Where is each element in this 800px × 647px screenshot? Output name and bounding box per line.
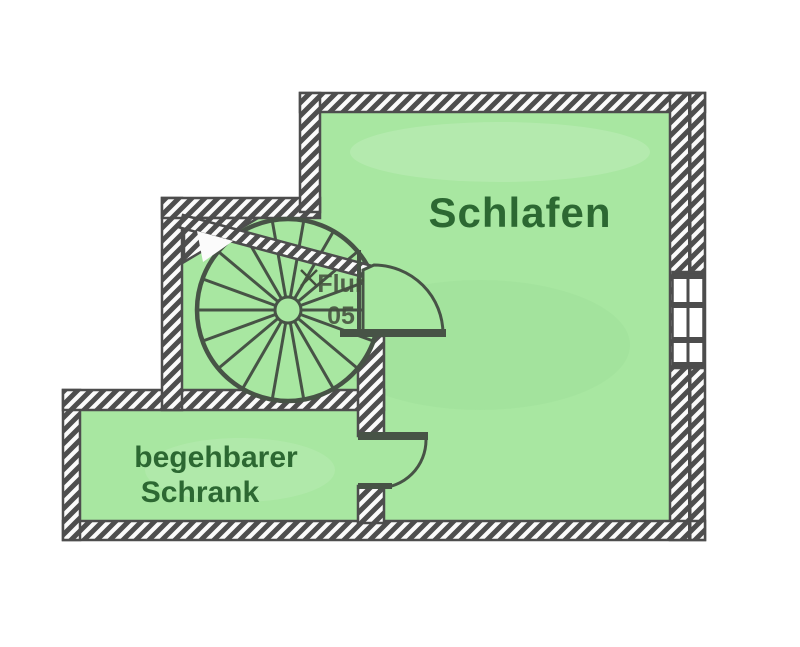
label-begehbarer: begehbarer — [134, 441, 298, 474]
door-lower-leaf — [358, 432, 428, 440]
wall-top — [300, 93, 705, 112]
wall-stair-left — [162, 198, 182, 410]
floor-plan-drawing: Schlafen begehbarer Schrank Flur 05 — [0, 0, 800, 647]
label-flur: Flur — [317, 270, 364, 298]
wall-closet-top — [63, 390, 384, 410]
label-flur-number: 05 — [327, 302, 355, 330]
scan-blotch — [350, 122, 650, 182]
wall-mid-stub — [358, 486, 384, 523]
wall-closet-left — [63, 390, 80, 540]
window-right-wall — [673, 272, 704, 368]
label-schrank: Schrank — [141, 476, 260, 509]
door-upper-leaf — [340, 329, 446, 337]
staircase-center-circle — [275, 297, 301, 323]
door-lower-stub-cap — [358, 483, 392, 489]
window-center-line — [687, 272, 690, 368]
wall-schlafen-left — [300, 93, 320, 212]
floor-plan-page: Schlafen begehbarer Schrank Flur 05 — [0, 0, 800, 647]
label-schlafen: Schlafen — [428, 189, 611, 236]
